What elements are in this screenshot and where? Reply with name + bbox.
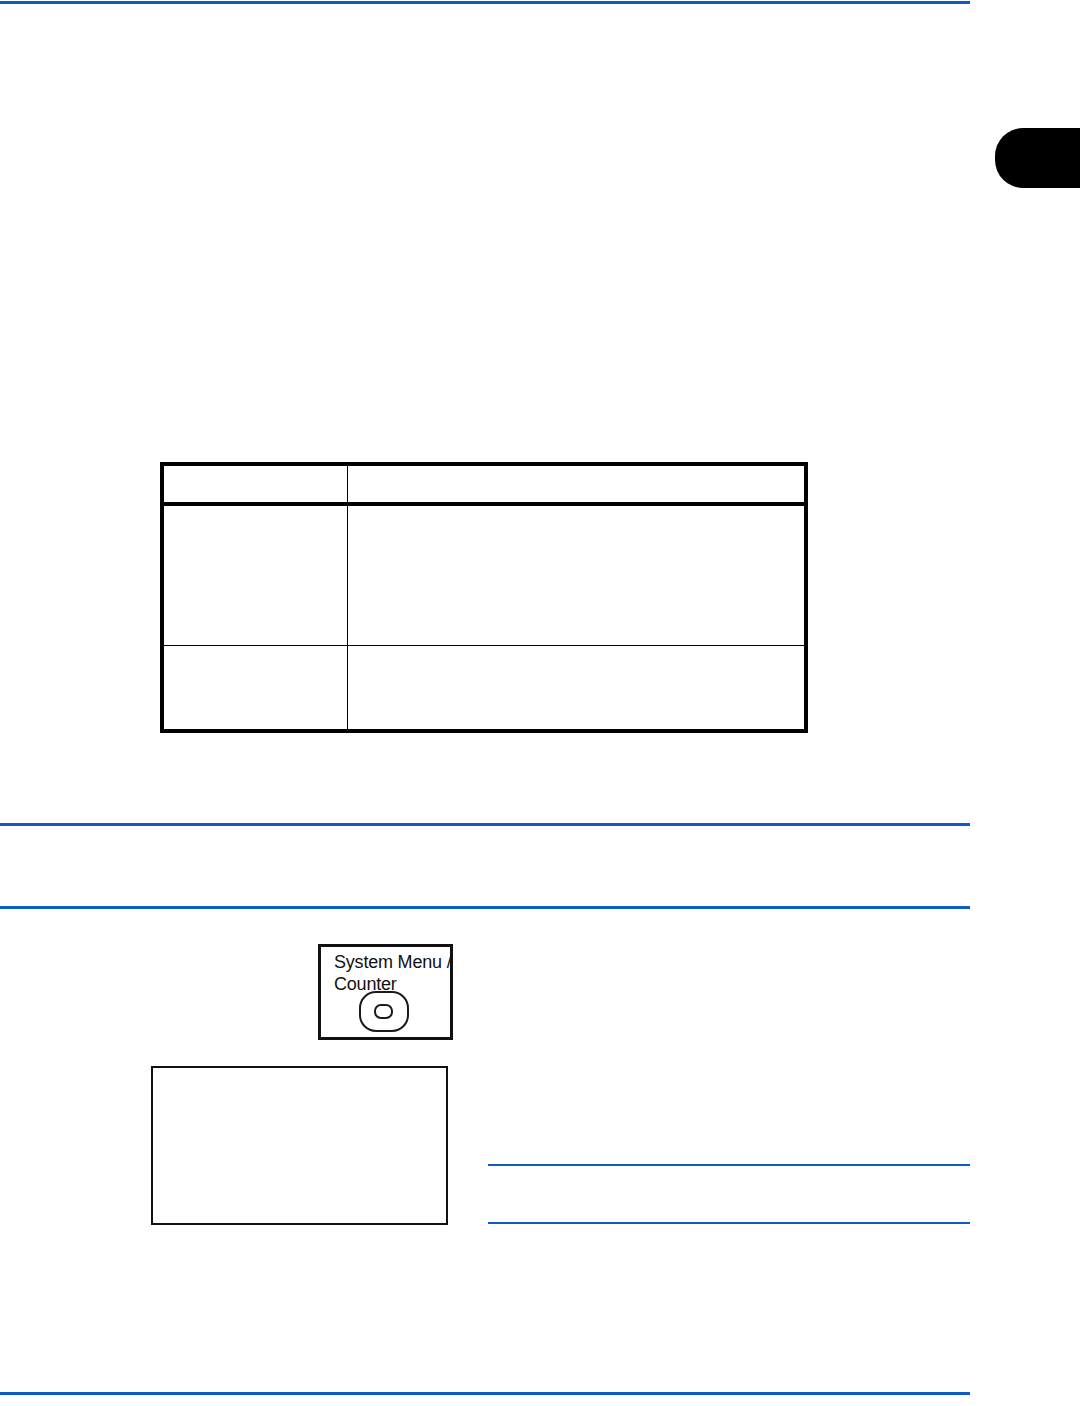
table-cell (162, 646, 347, 731)
table-cell (347, 504, 806, 646)
table-row (162, 646, 806, 731)
section-divider-rule-bottom (0, 906, 970, 909)
key-label-line-1: System Menu / (334, 951, 451, 973)
table-header-cell-description (347, 464, 806, 504)
chapter-index-tab-icon (995, 128, 1080, 188)
system-menu-counter-key: System Menu / Counter (318, 944, 453, 1040)
oval-key-icon (359, 991, 409, 1032)
settings-table (160, 462, 808, 733)
top-rule (0, 1, 970, 4)
note-rule-bottom (488, 1222, 970, 1224)
table-cell (162, 504, 347, 646)
oval-key-inner-icon (374, 1004, 393, 1019)
screen-placeholder-box (151, 1066, 448, 1225)
table-cell (347, 646, 806, 731)
table-header-cell-item (162, 464, 347, 504)
bottom-rule (0, 1392, 970, 1395)
note-rule-top (488, 1164, 970, 1166)
manual-page: System Menu / Counter (0, 0, 1080, 1406)
section-divider-rule-top (0, 823, 970, 826)
table-header-row (162, 464, 806, 504)
key-label: System Menu / Counter (334, 951, 451, 995)
table-row (162, 504, 806, 646)
